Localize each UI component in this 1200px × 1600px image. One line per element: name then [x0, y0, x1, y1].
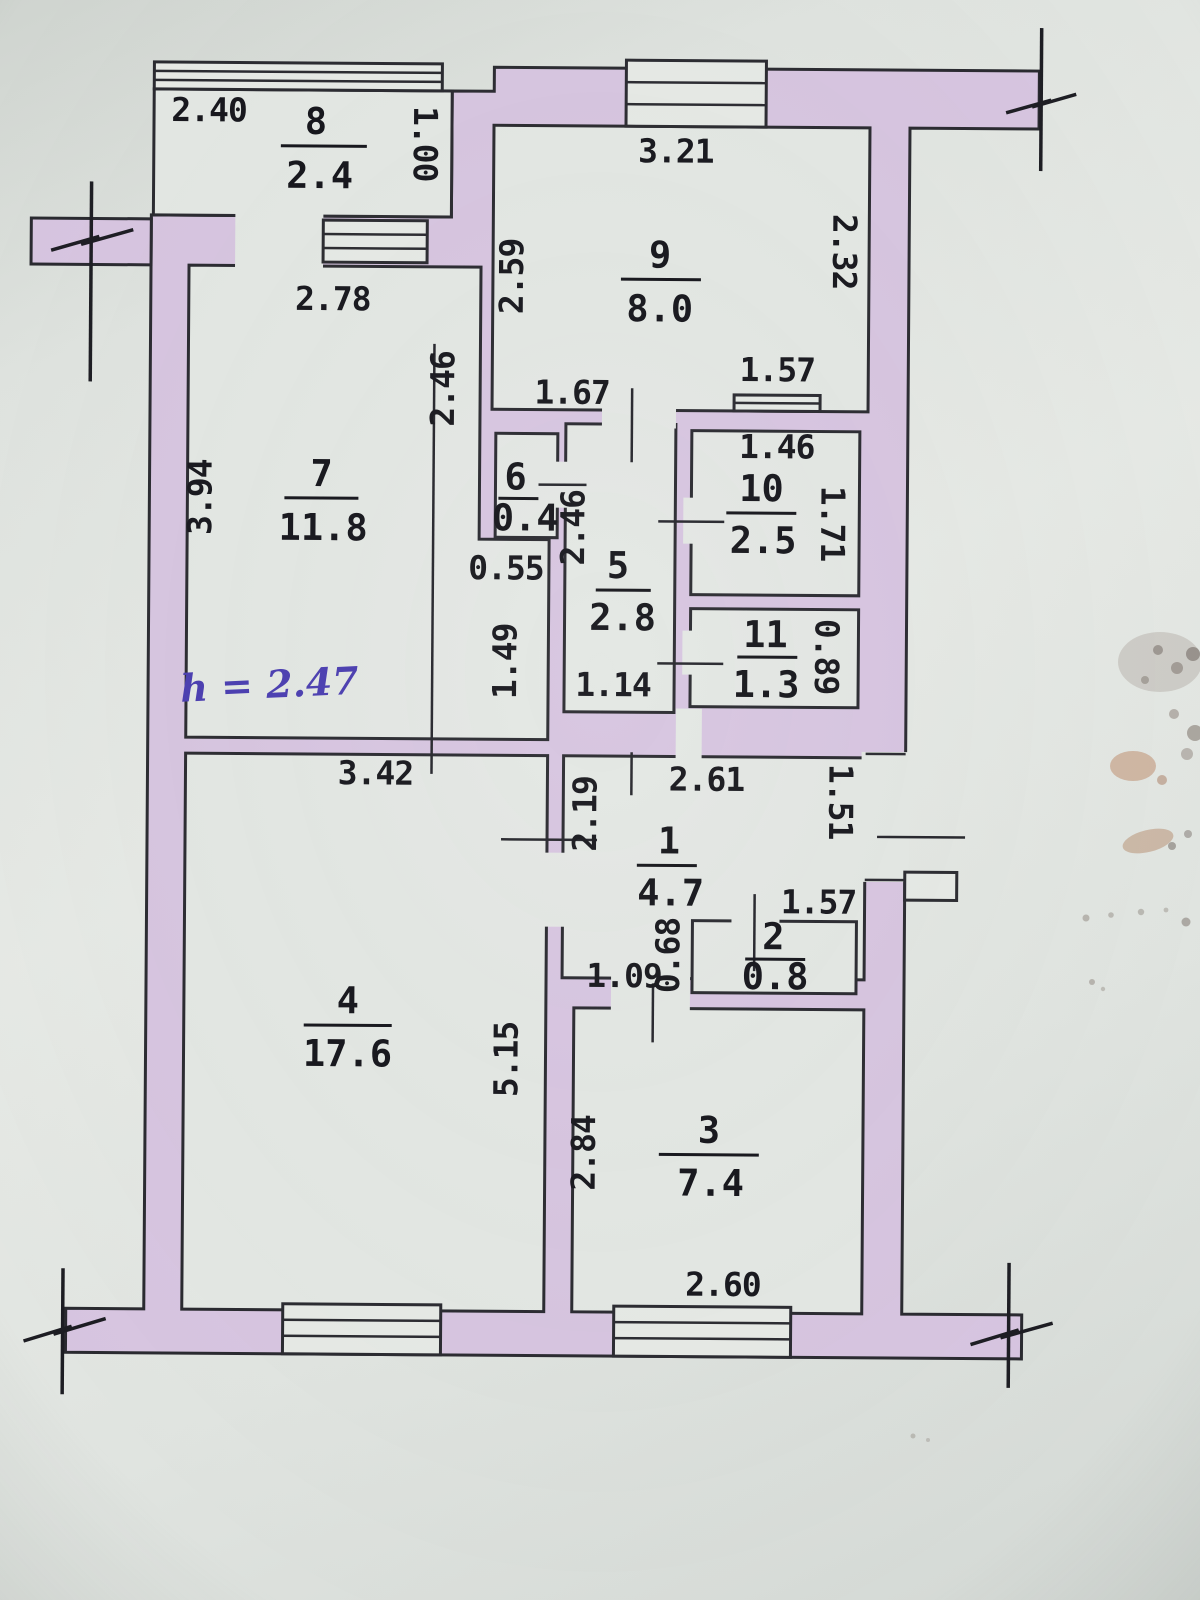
photo-vignette	[0, 0, 1200, 1600]
scanned-floorplan-page: 8 2.4 9 8.0 7 11.8 6 0.4 5 2.8 10 2.5	[0, 0, 1200, 1600]
floor-plan-drawing: 8 2.4 9 8.0 7 11.8 6 0.4 5 2.8 10 2.5	[0, 0, 1200, 1600]
